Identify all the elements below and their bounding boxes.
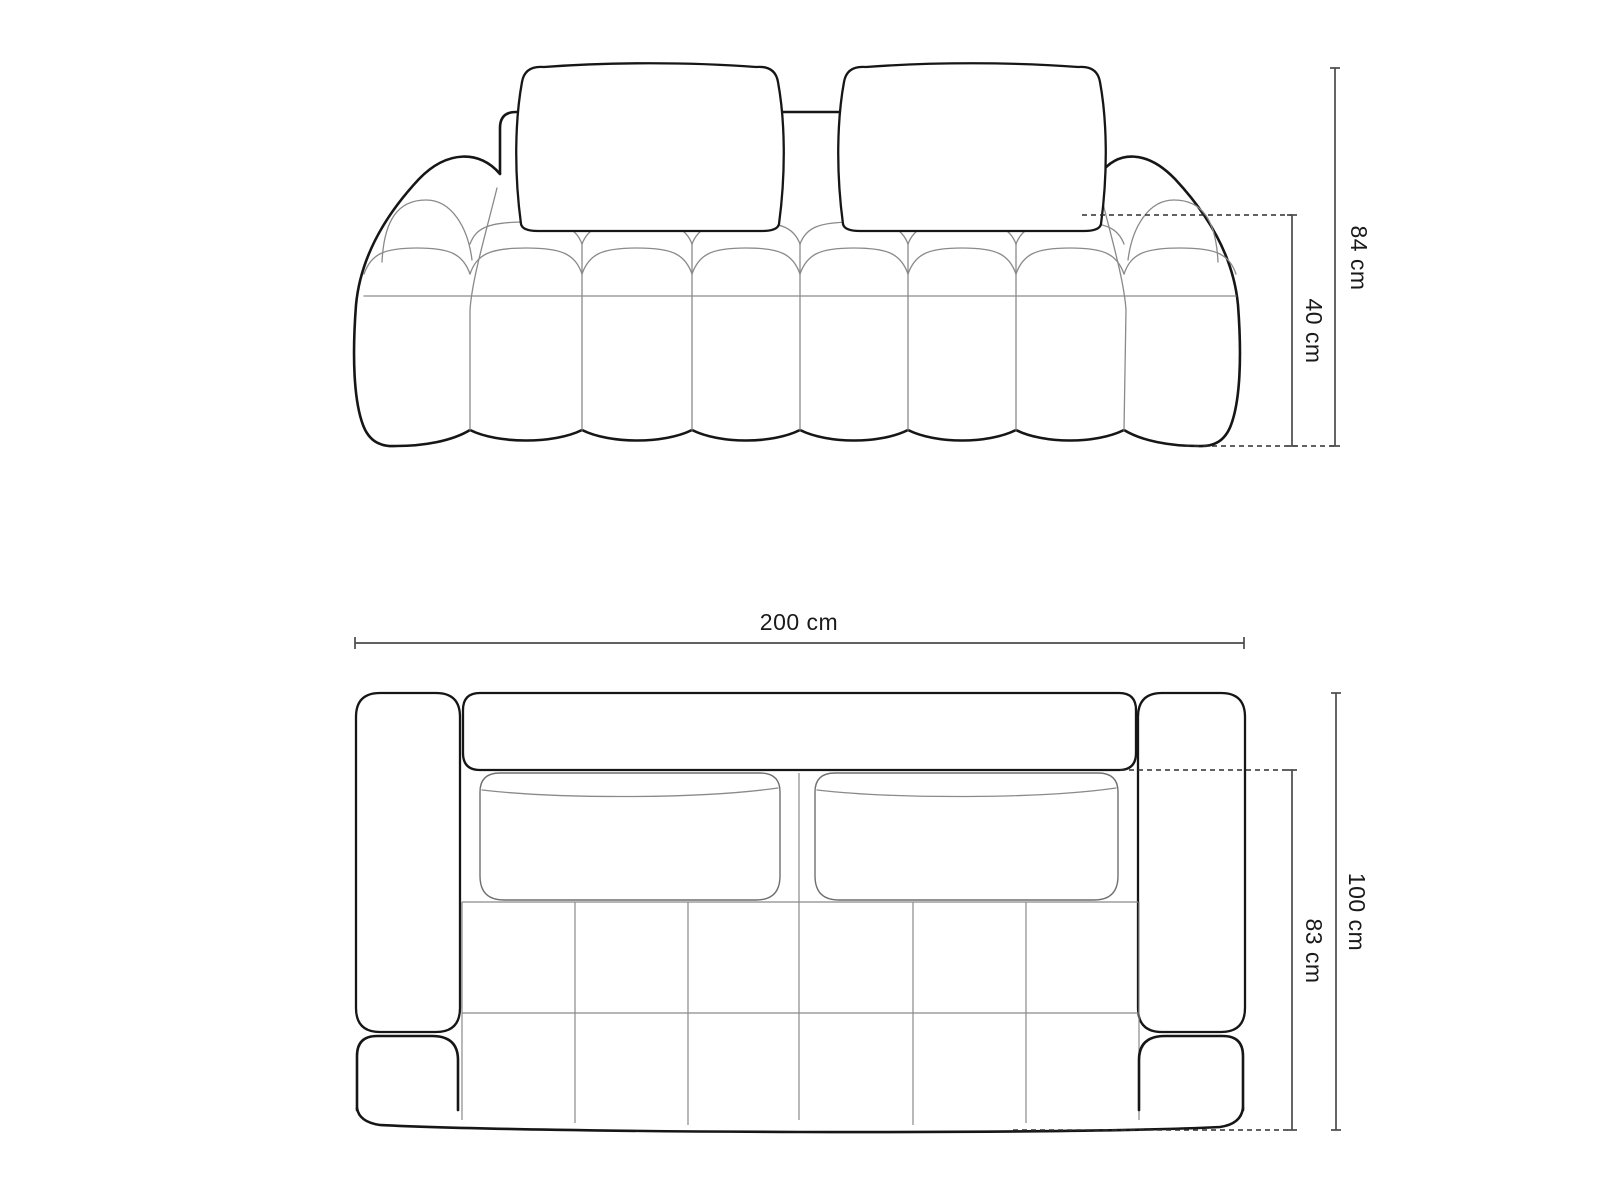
dimension-width: 200 cm (355, 609, 1244, 649)
dimension-label-seat-height: 40 cm (1301, 298, 1327, 363)
diagram-canvas: 40 cm 84 cm 200 cm (0, 0, 1600, 1200)
sofa-dimension-diagram: 40 cm 84 cm 200 cm (0, 0, 1600, 1200)
pillow-left (516, 63, 784, 231)
top-view: 200 cm (355, 609, 1370, 1132)
top-backrest (463, 693, 1136, 770)
seat-cushion-right (815, 773, 1118, 900)
dimension-label-seat-depth: 83 cm (1301, 918, 1327, 983)
dimension-depth: 100 cm (1331, 693, 1370, 1130)
front-body-fill (354, 157, 1240, 447)
dimension-seat-height: 40 cm (1287, 215, 1327, 446)
dimension-label-depth: 100 cm (1344, 873, 1370, 951)
top-armrest-left (356, 693, 460, 1032)
dimension-seat-depth: 83 cm (1287, 770, 1327, 1130)
dimension-label-width: 200 cm (760, 609, 838, 635)
top-front-corner-left (357, 1036, 458, 1110)
front-view: 40 cm 84 cm (354, 63, 1372, 446)
pillow-right (838, 63, 1106, 231)
top-front-corner-right (1139, 1036, 1243, 1110)
dimension-total-height: 84 cm (1330, 68, 1372, 446)
top-front-edge (357, 1108, 1243, 1132)
dimension-label-total-height: 84 cm (1346, 225, 1372, 290)
top-armrest-right (1138, 693, 1245, 1032)
